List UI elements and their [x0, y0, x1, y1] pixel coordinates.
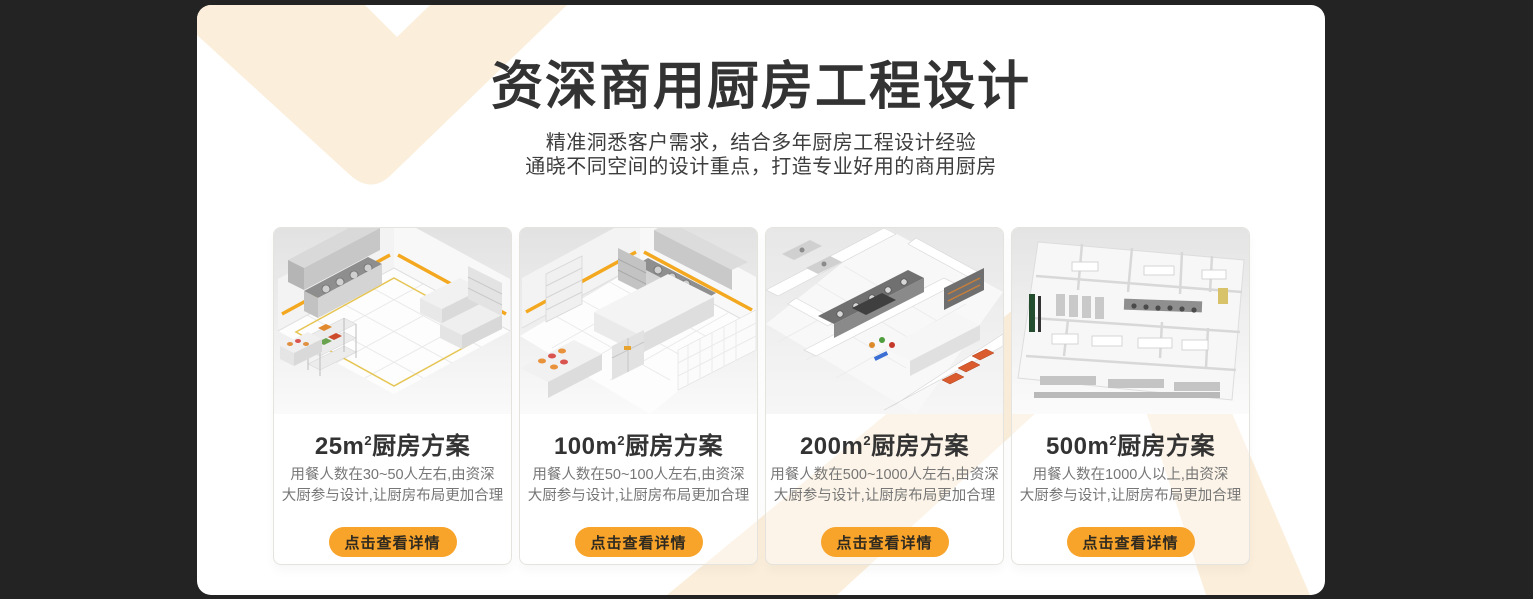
- kitchen-render-100m2-image: [520, 228, 757, 414]
- subtitle-line-2: 通晓不同空间的设计重点，打造专业好用的商用厨房: [197, 155, 1325, 179]
- view-details-button-100m2[interactable]: 点击查看详情: [575, 527, 703, 557]
- plan-card-description: 用餐人数在50~100人左右,由资深 大厨参与设计,让厨房布局更加合理: [520, 465, 757, 507]
- plan-card-200m2: 200m2厨房方案 用餐人数在500~1000人左右,由资深 大厨参与设计,让厨…: [765, 227, 1004, 565]
- plan-card-description: 用餐人数在1000人以上,由资深 大厨参与设计,让厨房布局更加合理: [1012, 465, 1249, 507]
- view-details-button-500m2[interactable]: 点击查看详情: [1067, 527, 1195, 557]
- kitchen-render-500m2-image: [1012, 228, 1249, 414]
- plan-card-row: 25m2厨房方案 用餐人数在30~50人左右,由资深 大厨参与设计,让厨房布局更…: [273, 227, 1250, 565]
- plan-card-title: 100m2厨房方案: [520, 426, 757, 462]
- plan-card-25m2: 25m2厨房方案 用餐人数在30~50人左右,由资深 大厨参与设计,让厨房布局更…: [273, 227, 512, 565]
- kitchen-render-200m2-image: [766, 228, 1003, 414]
- plan-card-500m2: 500m2厨房方案 用餐人数在1000人以上,由资深 大厨参与设计,让厨房布局更…: [1011, 227, 1250, 565]
- plan-card-title: 25m2厨房方案: [274, 426, 511, 462]
- plan-card-title: 500m2厨房方案: [1012, 426, 1249, 462]
- page-title: 资深商用厨房工程设计: [197, 57, 1325, 117]
- plan-card-description: 用餐人数在30~50人左右,由资深 大厨参与设计,让厨房布局更加合理: [274, 465, 511, 507]
- subtitle-line-1: 精准洞悉客户需求，结合多年厨房工程设计经验: [197, 131, 1325, 155]
- plan-card-description: 用餐人数在500~1000人左右,由资深 大厨参与设计,让厨房布局更加合理: [766, 465, 1003, 507]
- content-panel: 资深商用厨房工程设计 精准洞悉客户需求，结合多年厨房工程设计经验 通晓不同空间的…: [197, 5, 1325, 595]
- view-details-button-200m2[interactable]: 点击查看详情: [821, 527, 949, 557]
- view-details-button-25m2[interactable]: 点击查看详情: [329, 527, 457, 557]
- kitchen-render-25m2-image: [274, 228, 511, 414]
- section-header: 资深商用厨房工程设计 精准洞悉客户需求，结合多年厨房工程设计经验 通晓不同空间的…: [197, 5, 1325, 179]
- plan-card-title: 200m2厨房方案: [766, 426, 1003, 462]
- page-subtitle: 精准洞悉客户需求，结合多年厨房工程设计经验 通晓不同空间的设计重点，打造专业好用…: [197, 131, 1325, 179]
- plan-card-100m2: 100m2厨房方案 用餐人数在50~100人左右,由资深 大厨参与设计,让厨房布…: [519, 227, 758, 565]
